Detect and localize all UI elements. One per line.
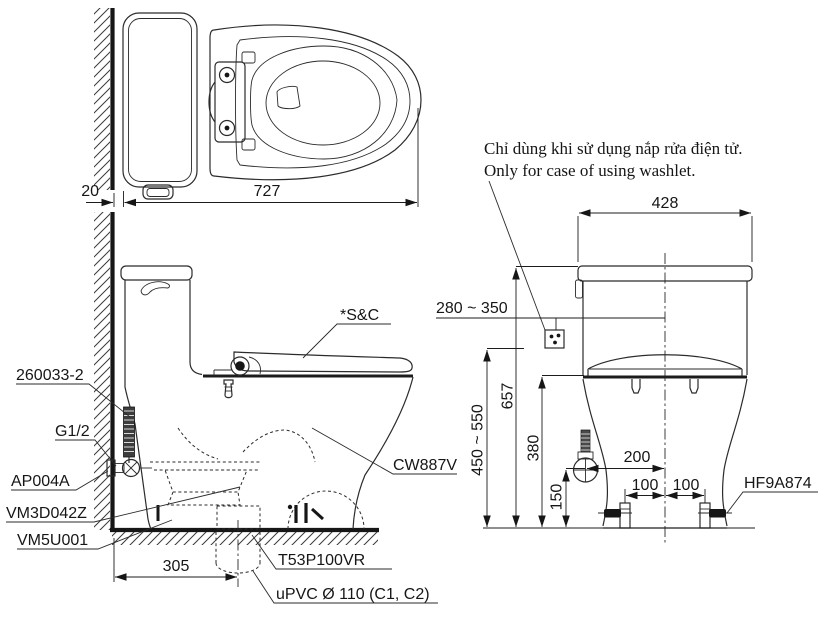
dim-hose-height: 450 ~ 550 (470, 404, 487, 476)
dim-inlet-offset: 200 (624, 449, 651, 466)
dim-rim-height: 380 (526, 435, 543, 462)
dim-tank-width: 428 (652, 195, 679, 212)
dimension-inlet-offset: 200 (587, 449, 664, 469)
label-bowl-model: CW887V (393, 457, 457, 474)
bolt-cap-right (709, 509, 726, 518)
technical-drawing-page: 20 727 (0, 0, 822, 626)
dimension-inlet-height: 150 (549, 469, 586, 528)
seat-ring-top-view (251, 46, 398, 159)
flush-button-front (576, 280, 583, 298)
label-drain-socket: T53P100VR (278, 552, 365, 569)
tank-front-view (576, 266, 753, 375)
label-drain-pipe: uPVC Ø 110 (C1, C2) (276, 586, 430, 603)
dim-total-height: 657 (500, 383, 517, 410)
note-line-vi: Chỉ dùng khi sử dụng nắp rửa điện tử. (484, 139, 743, 158)
bolt-cap-leader (727, 492, 818, 513)
dim-wall-gap: 20 (81, 183, 99, 200)
label-bolt-cap: HF9A874 (744, 475, 812, 492)
wall-hatching-side-view (94, 212, 110, 530)
washlet-connector (224, 380, 233, 398)
floor-hatching (112, 532, 378, 545)
dim-bolt-right: 100 (673, 477, 700, 494)
dimension-tank-width: 428 (578, 195, 752, 262)
bowl-front-curve (353, 377, 413, 529)
seat-bolt-right (690, 379, 698, 393)
supply-hose (124, 407, 135, 463)
label-supply-hose: 260033-2 (16, 367, 84, 384)
label-thread-size: G1/2 (55, 423, 90, 440)
label-stop-valve: AP004A (11, 473, 70, 490)
lid-top-view (210, 25, 421, 180)
side-view-labels: 260033-2 G1/2 AP004A VM3D042Z VM5U001 *S… (6, 307, 457, 603)
seat-bolt-left (632, 379, 640, 393)
side-view: 305 260033-2 G1/2 AP004A VM3D042Z VM5U00… (6, 212, 457, 603)
power-outlet-symbol (545, 330, 564, 348)
bowl-opening-top-view (266, 61, 380, 145)
tank-lid-side (121, 266, 192, 280)
tank-back-side (125, 280, 151, 529)
dim-total-length: 727 (254, 183, 281, 200)
label-floor-flange: VM5U001 (17, 532, 88, 549)
tank-top-view (123, 13, 197, 199)
hinge-top-view (209, 52, 255, 150)
label-gasket: VM3D042Z (6, 505, 87, 522)
tank-front-side (190, 280, 202, 375)
nozzle-cover-top-view (277, 86, 300, 108)
wall-hatching-top-view (94, 8, 110, 190)
drawing-canvas: 20 727 (0, 0, 822, 626)
dim-outlet-height: 280 ~ 350 (436, 300, 508, 317)
note-line-en: Only for case of using washlet. (484, 161, 696, 180)
dim-bolt-left: 100 (632, 477, 659, 494)
dimension-top-length: 20 727 (81, 108, 418, 207)
label-seat-cover: *S&C (340, 307, 379, 324)
top-view: 20 727 (81, 8, 421, 207)
toilet-side-profile (121, 266, 413, 529)
hidden-plumbing (150, 428, 364, 529)
bolt-cap-left (604, 509, 621, 518)
dim-inlet-height: 150 (549, 484, 566, 511)
front-view: Chỉ dùng khi sử dụng nắp rửa điện tử. On… (436, 139, 818, 545)
dim-drain-offset: 305 (163, 558, 190, 575)
tank-grip-recess (141, 282, 170, 295)
supply-inlet-front (574, 430, 598, 482)
